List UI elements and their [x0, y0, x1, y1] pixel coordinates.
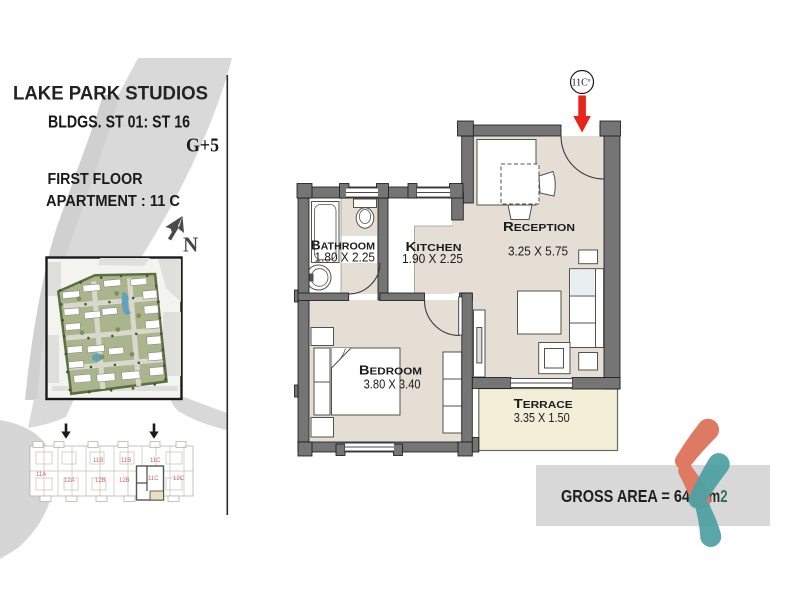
- svg-text:1.80 X 2.25: 1.80 X 2.25: [315, 250, 376, 265]
- svg-text:12B: 12B: [119, 478, 130, 484]
- svg-text:N: N: [183, 233, 198, 257]
- svg-text:11C: 11C: [148, 476, 159, 482]
- svg-text:12B: 12B: [95, 478, 106, 484]
- svg-text:3.25 X 5.75: 3.25 X 5.75: [508, 244, 568, 259]
- svg-text:GROSS AREA = 64: GROSS AREA = 64: [561, 486, 690, 506]
- svg-text:RECEPTION: RECEPTION: [503, 220, 575, 234]
- svg-text:TERRACE: TERRACE: [514, 397, 573, 411]
- svg-text:11B: 11B: [121, 458, 131, 464]
- svg-text:FIRST FLOOR: FIRST FLOOR: [48, 171, 143, 188]
- svg-text:12C: 12C: [173, 476, 185, 482]
- svg-text:BEDROOM: BEDROOM: [359, 364, 422, 378]
- svg-text:1.90 X 2.25: 1.90 X 2.25: [402, 251, 463, 266]
- svg-text:BLDGS. ST 01: ST 16: BLDGS. ST 01: ST 16: [48, 112, 190, 132]
- svg-text:12A: 12A: [64, 478, 75, 484]
- svg-text:APARTMENT : 11 C: APARTMENT : 11 C: [46, 193, 180, 210]
- svg-text:3.80 X 3.40: 3.80 X 3.40: [364, 377, 421, 392]
- svg-text:11C: 11C: [150, 458, 161, 464]
- svg-text:LAKE PARK STUDIOS: LAKE PARK STUDIOS: [13, 83, 208, 105]
- svg-text:11A: 11A: [36, 472, 46, 478]
- svg-text:G+5: G+5: [186, 135, 219, 157]
- svg-text:3.35 X 1.50: 3.35 X 1.50: [514, 410, 570, 425]
- svg-text:11B: 11B: [93, 458, 103, 464]
